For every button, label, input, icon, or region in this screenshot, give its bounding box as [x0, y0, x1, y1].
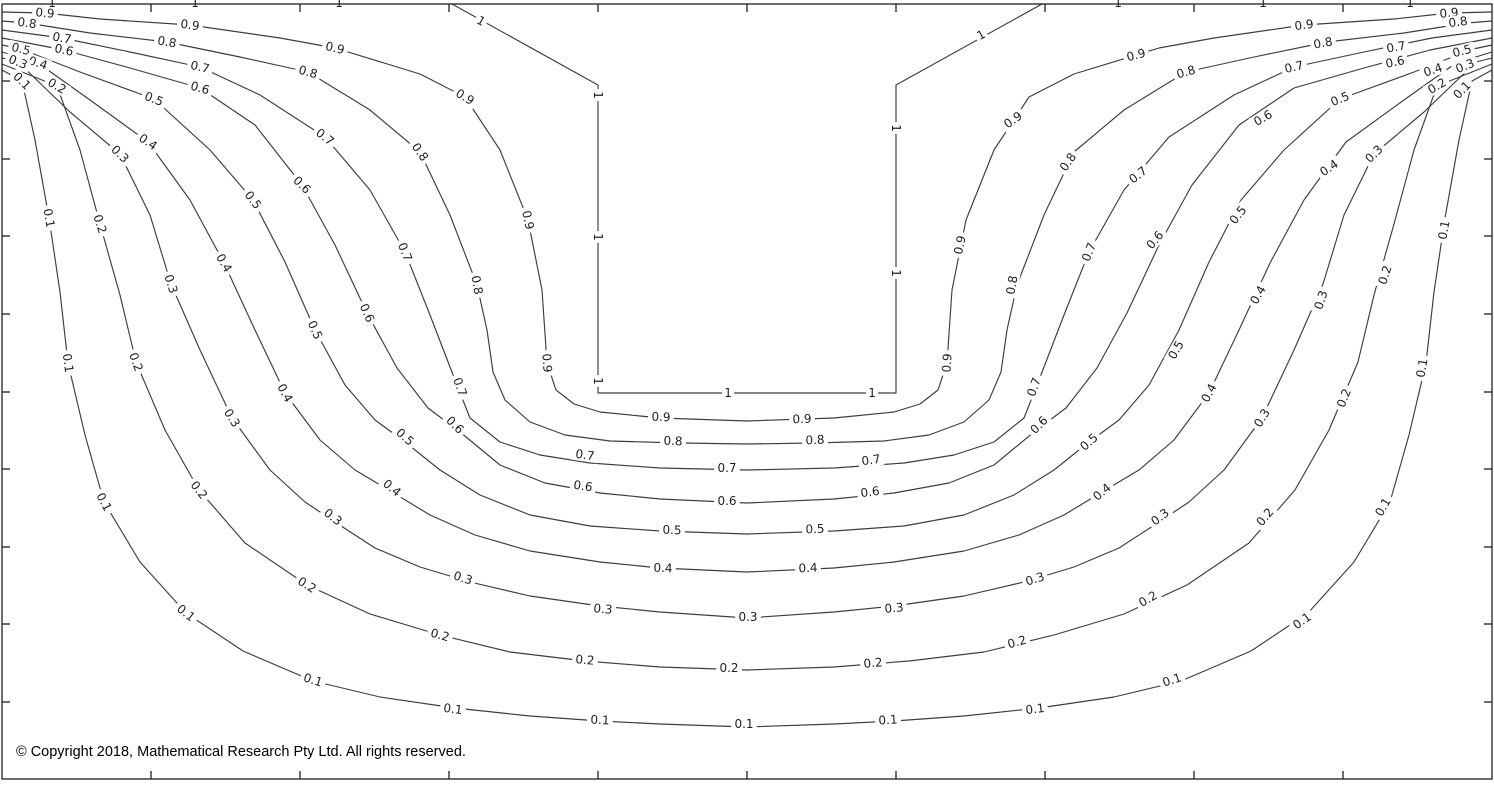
contour-label-text: 0.2: [429, 626, 451, 645]
contour-label-0.5: 0.5: [1164, 335, 1189, 364]
contour-label-0.9: 0.9: [789, 412, 815, 427]
contour-label-text: 1: [868, 386, 876, 400]
contour-label-text: 0.6: [1384, 53, 1406, 71]
contour-label-0.4: 0.4: [212, 248, 237, 277]
contour-label-0.6: 0.6: [441, 411, 469, 439]
contour-label-0.1: 0.1: [875, 712, 901, 727]
contour-label-text: 0.1: [878, 713, 898, 728]
contour-label-0.8: 0.8: [1309, 34, 1337, 52]
contour-label-0.4: 0.4: [133, 129, 162, 155]
contour-label-0.1: 0.1: [439, 700, 466, 717]
contour-label-0.5: 0.5: [1075, 428, 1103, 456]
contour-label-text: 0.8: [1003, 274, 1020, 295]
contour-label-text: 0.6: [53, 41, 75, 59]
contour-label-0.3: 0.3: [106, 140, 134, 168]
contour-label-0.1: 0.1: [8, 67, 36, 95]
contour-label-0.8: 0.8: [1003, 271, 1021, 299]
contour-label-text: 0.1: [1435, 219, 1452, 240]
contour-label-0.2: 0.2: [860, 655, 887, 671]
contour-label-text: 1: [335, 0, 343, 10]
contour-label-0.8: 0.8: [407, 137, 433, 166]
contour-label-0.3: 0.3: [1310, 286, 1331, 315]
contour-label-0.2: 0.2: [1003, 632, 1032, 653]
contour-label-0.7: 0.7: [1078, 237, 1101, 266]
contour-label-text: 0.9: [792, 412, 812, 427]
contour-label-text: 0.7: [1385, 38, 1406, 55]
contour-label-text: 0.9: [651, 410, 671, 425]
contour-label-text: 0.9: [180, 17, 201, 34]
contour-label-1: 1: [591, 231, 605, 243]
contour-label-0.3: 0.3: [449, 567, 478, 588]
contour-label-0.3: 0.3: [1146, 504, 1175, 531]
contour-label-1: 1: [1406, 0, 1414, 10]
contour-label-1: 1: [1114, 0, 1122, 10]
contour-label-0.9: 0.9: [648, 410, 674, 425]
contour-label-0.5: 0.5: [391, 423, 419, 451]
contour-label-text: 0.1: [1025, 701, 1046, 717]
contour-label-0.4: 0.4: [795, 561, 821, 576]
contour-label-text: 0.7: [189, 58, 211, 76]
contour-label-0.8: 0.8: [1055, 147, 1081, 176]
contour-label-0.3: 0.3: [219, 403, 244, 432]
contour-label-0.1: 0.1: [40, 204, 58, 232]
contour-label-1: 1: [335, 0, 343, 10]
contour-label-text: 0.8: [1448, 14, 1469, 31]
contour-label-0.8: 0.8: [468, 271, 486, 299]
contour-label-text: 0.8: [468, 274, 485, 295]
contour-label-0.6: 0.6: [186, 78, 215, 99]
contour-label-text: 0.8: [156, 33, 177, 50]
contour-label-0.3: 0.3: [1021, 568, 1050, 589]
contour-label-0.3: 0.3: [735, 610, 761, 624]
contour-label-text: 0.1: [60, 353, 77, 374]
contour-label-0.5: 0.5: [139, 88, 168, 111]
contour-label-0.3: 0.3: [590, 601, 617, 617]
contour-label-text: 0.6: [573, 478, 594, 495]
contour-label-0.6: 0.6: [1248, 106, 1277, 131]
contour-label-0.7: 0.7: [1124, 162, 1153, 189]
contour-label-0.7: 0.7: [394, 237, 417, 266]
contour-label-0.2: 0.2: [1251, 503, 1278, 532]
contour-figure: 1111111111111110.90.90.90.90.90.90.90.90…: [0, 0, 1494, 787]
contour-label-0.5: 0.5: [802, 522, 828, 537]
contour-label-1: 1: [591, 375, 605, 387]
contour-label-0.9: 0.9: [939, 350, 955, 377]
contour-label-text: 0.7: [575, 447, 596, 464]
contour-label-text: 0.7: [1283, 58, 1305, 76]
contour-label-text: 0.8: [17, 15, 38, 32]
contour-label-0.9: 0.9: [1122, 45, 1150, 65]
contour-label-text: 0.9: [519, 209, 537, 231]
contour-label-0.7: 0.7: [1280, 57, 1308, 76]
contour-label-text: 0.1: [443, 701, 464, 717]
contour-label-0.1: 0.1: [1435, 216, 1453, 244]
contour-label-text: 1: [1259, 0, 1267, 10]
contour-label-0.5: 0.5: [1325, 88, 1354, 111]
contour-label-text: 0.9: [1294, 17, 1315, 34]
contour-label-text: 0.1: [734, 717, 753, 731]
contour-label-text: 0.6: [860, 484, 881, 501]
contour-label-text: 0.9: [539, 353, 554, 373]
contour-label-0.2: 0.2: [716, 661, 742, 675]
contour-label-0.1: 0.1: [1413, 354, 1431, 382]
contour-label-text: 0.9: [939, 353, 954, 373]
contour-label-text: 0.8: [297, 63, 319, 82]
contour-label-0.7: 0.7: [1023, 373, 1045, 402]
contour-label-text: 0.6: [717, 494, 736, 508]
contour-label-text: 0.9: [951, 234, 969, 256]
contour-label-0.4: 0.4: [1197, 378, 1221, 407]
contour-label-0.6: 0.6: [856, 483, 883, 500]
contour-label-text: 0.3: [593, 601, 613, 617]
copyright-text: © Copyright 2018, Mathematical Research …: [16, 744, 466, 760]
contour-label-0.7: 0.7: [311, 124, 340, 151]
contour-label-0.3: 0.3: [319, 504, 348, 531]
contour-label-text: 0.4: [653, 561, 673, 576]
contour-label-0.1: 0.1: [59, 349, 76, 376]
contour-label-0.9: 0.9: [1290, 16, 1317, 33]
contour-label-0.2: 0.2: [1374, 261, 1395, 290]
contour-line-0.4: [2, 52, 1492, 572]
contour-line-1: [452, 4, 1042, 393]
contour-label-text: 0.2: [575, 652, 595, 668]
contour-label-text: 0.3: [884, 600, 904, 616]
contour-label-1: 1: [191, 0, 199, 10]
contour-label-text: 0.3: [738, 610, 757, 624]
contour-label-0.2: 0.2: [572, 652, 599, 668]
contour-label-1: 1: [889, 122, 903, 134]
contour-label-text: 0.4: [798, 561, 818, 576]
contour-label-text: 1: [889, 269, 903, 277]
contour-label-0.1: 0.1: [1158, 669, 1187, 690]
contour-label-0.8: 0.8: [294, 62, 323, 83]
contour-label-0.4: 0.4: [650, 561, 676, 576]
contour-label-0.8: 0.8: [1444, 13, 1471, 30]
contour-label-0.4: 0.4: [273, 378, 297, 407]
contour-label-0.6: 0.6: [288, 171, 316, 199]
contour-label-0.8: 0.8: [13, 14, 40, 31]
contour-label-1: 1: [722, 386, 734, 400]
contour-label-text: 0.8: [805, 433, 825, 448]
contour-label-0.5: 0.5: [659, 523, 685, 538]
contour-label-0.1: 0.1: [172, 600, 201, 627]
contour-label-0.9: 0.9: [998, 107, 1027, 133]
contour-label-0.1: 0.1: [1287, 608, 1316, 634]
contour-label-0.3: 0.3: [160, 270, 181, 299]
contour-label-1: 1: [591, 89, 605, 101]
contour-label-0.2: 0.2: [1333, 383, 1356, 412]
contour-label-text: 0.8: [663, 434, 683, 449]
contour-label-0.9: 0.9: [450, 84, 479, 109]
contour-label-0.2: 0.2: [292, 572, 321, 597]
contour-line-0.2: [2, 64, 1492, 670]
contour-label-0.8: 0.8: [153, 33, 181, 51]
contour-label-text: 0.2: [1006, 633, 1028, 652]
contour-label-0.7: 0.7: [449, 373, 471, 402]
contour-label-text: 1: [591, 377, 605, 385]
contour-label-0.6: 0.6: [714, 494, 740, 508]
contour-label-0.9: 0.9: [539, 350, 555, 377]
contour-label-0.2: 0.2: [125, 348, 147, 377]
contour-label-text: 1: [191, 0, 199, 10]
contour-label-text: 0.5: [805, 522, 825, 537]
contour-label-0.1: 0.1: [587, 712, 613, 727]
contour-label-text: 0.8: [1175, 63, 1197, 82]
contour-label-text: 0.2: [863, 655, 883, 671]
contour-label-0.9: 0.9: [950, 231, 969, 259]
contour-label-0.7: 0.7: [186, 57, 214, 76]
contour-label-0.6: 0.6: [1141, 226, 1168, 255]
contour-label-0.3: 0.3: [881, 600, 908, 616]
contour-label-text: 1: [591, 233, 605, 241]
contour-label-0.6: 0.6: [355, 298, 378, 327]
contour-label-0.1: 0.1: [92, 487, 116, 516]
contour-label-text: 0.7: [717, 461, 736, 475]
contour-label-0.9: 0.9: [518, 206, 537, 234]
contour-label-text: 0.6: [189, 79, 211, 98]
contour-line-0.9: [2, 12, 1492, 421]
contour-label-0.7: 0.7: [857, 451, 884, 468]
contour-label-1: 1: [1259, 0, 1267, 10]
contour-line-0.8: [2, 21, 1492, 444]
contour-label-0.8: 0.8: [1172, 62, 1201, 83]
contour-label-text: 0.1: [40, 207, 57, 228]
contour-label-0.8: 0.8: [802, 433, 828, 448]
contour-plot-svg: 1111111111111110.90.90.90.90.90.90.90.90…: [0, 0, 1494, 787]
contour-label-0.3: 0.3: [1360, 140, 1388, 168]
contour-label-0.9: 0.9: [176, 16, 203, 33]
contour-label-text: 1: [1114, 0, 1122, 10]
contour-label-text: 1: [724, 386, 732, 400]
contour-label-0.4: 0.4: [1088, 478, 1117, 505]
contour-label-text: 0.1: [590, 713, 610, 728]
contour-label-text: 1: [889, 124, 903, 132]
contour-label-0.1: 0.1: [731, 717, 757, 731]
contour-label-text: 0.7: [861, 452, 882, 469]
contour-label-text: 1: [591, 91, 605, 99]
contour-label-0.9: 0.9: [321, 38, 349, 57]
contour-label-0.5: 0.5: [303, 315, 326, 344]
contour-label-0.2: 0.2: [89, 210, 110, 239]
contour-label-0.7: 0.7: [714, 461, 740, 475]
contour-label-text: 0.9: [1125, 46, 1147, 64]
contour-label-0.1: 0.1: [1021, 700, 1048, 717]
contour-label-text: 0.1: [1413, 357, 1430, 378]
contour-label-0.1: 0.1: [299, 669, 328, 690]
contour-label-text: 0.2: [719, 661, 738, 675]
contour-label-0.3: 0.3: [1249, 403, 1274, 432]
contour-label-0.2: 0.2: [426, 625, 455, 646]
contour-label-text: 0.5: [662, 523, 682, 538]
contour-label-text: 1: [1406, 0, 1414, 10]
contour-label-text: 0.9: [324, 39, 346, 57]
contour-label-0.8: 0.8: [660, 434, 686, 449]
contour-label-1: 1: [866, 386, 878, 400]
contour-label-1: 1: [889, 267, 903, 279]
contour-label-0.4: 0.4: [1246, 280, 1271, 309]
contour-label-1: 1: [472, 12, 489, 30]
contour-label-text: 0.8: [1312, 34, 1333, 51]
contour-label-0.4: 0.4: [1314, 155, 1343, 181]
contour-label-0.6: 0.6: [1025, 411, 1053, 439]
contour-label-0.6: 0.6: [569, 477, 596, 494]
contour-label-0.2: 0.2: [42, 74, 71, 99]
